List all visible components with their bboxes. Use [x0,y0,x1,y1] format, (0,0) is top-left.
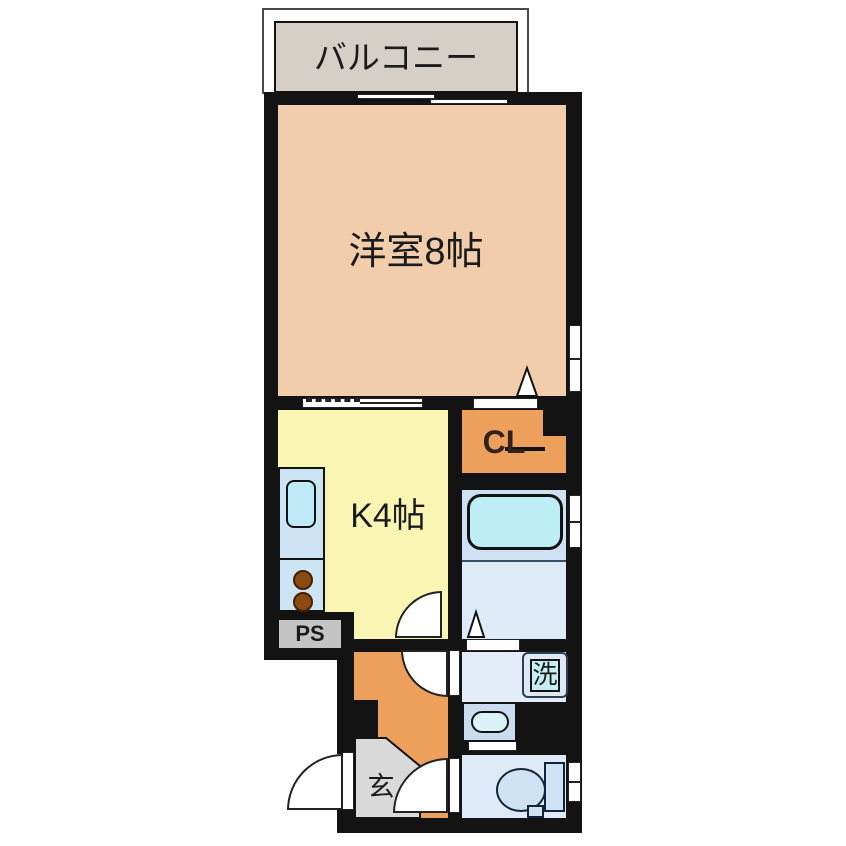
stove-burner-2 [293,592,313,612]
entrance-label: 玄 [366,772,396,802]
stove-burner [293,570,313,590]
kitchen-counter-divider [280,558,323,560]
kitchen-label: K4帖 [318,496,458,536]
bathtub [467,494,563,550]
toilet-tank [544,762,565,812]
floor-plan: バルコニー [0,0,846,846]
laundry-label: 洗 [531,661,559,689]
entrance-area-shape [0,0,846,846]
pipe-space-label: PS [279,620,341,648]
closet-label: CL [474,424,534,460]
toilet-handle [527,805,544,818]
vanity-sink-oval [471,711,509,733]
main-room-label: 洋室8帖 [306,230,526,274]
kitchen-sink [286,480,316,528]
